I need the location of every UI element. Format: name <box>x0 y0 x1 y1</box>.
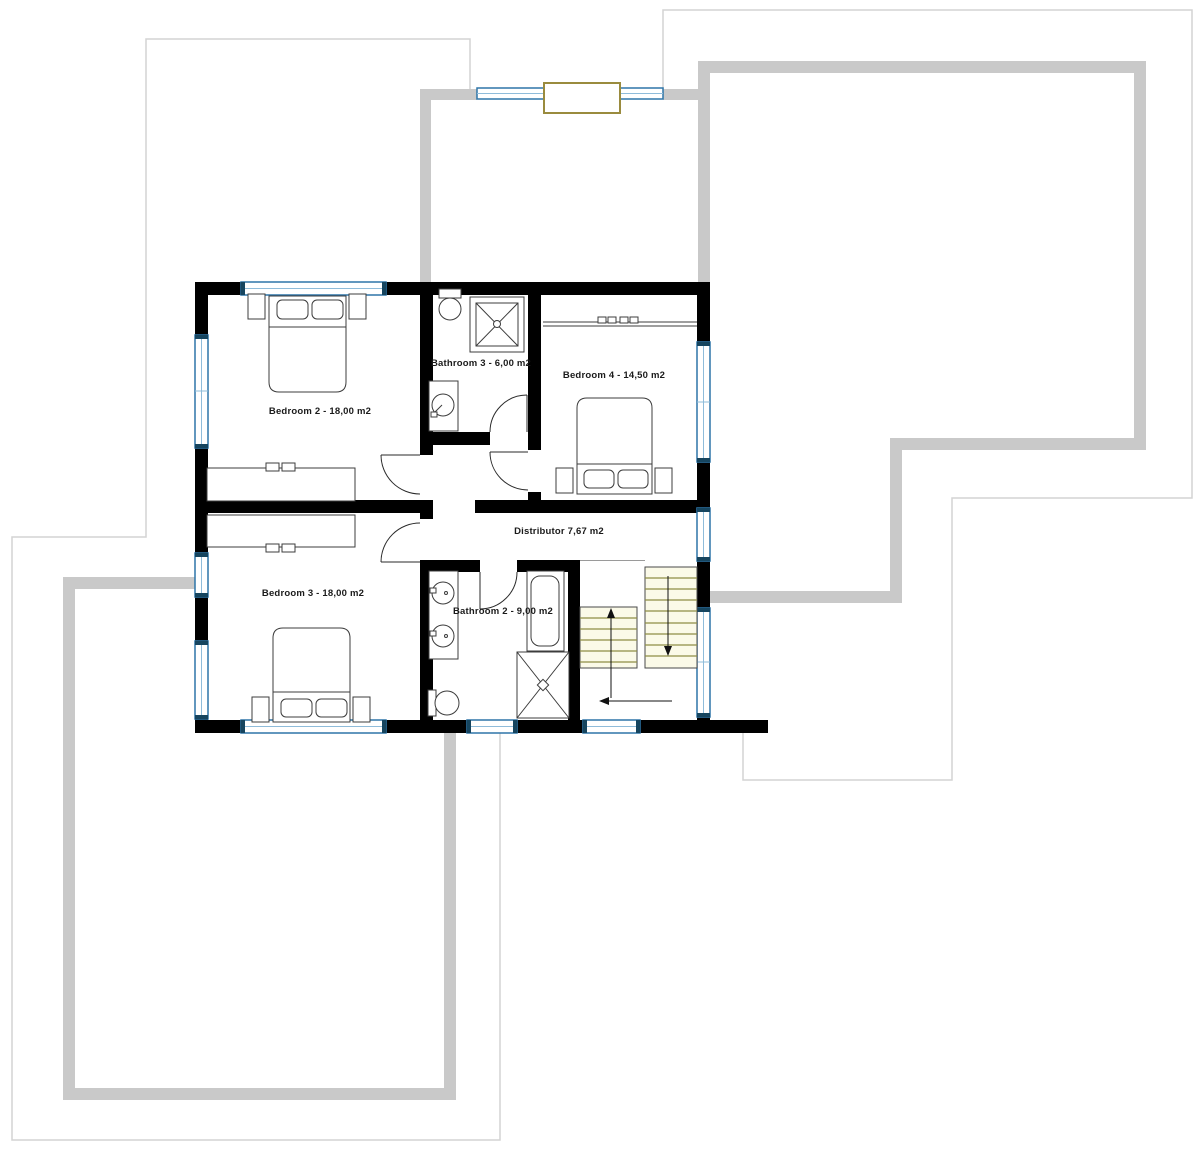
wardrobe-icon <box>207 515 355 552</box>
wardrobe-handle <box>282 463 295 471</box>
floor-plan-canvas: Bedroom 2 - 18,00 m2 Bathroom 3 - 6,00 m… <box>0 0 1200 1150</box>
pillow <box>312 300 343 319</box>
sink-drain <box>445 635 448 638</box>
toilet-icon <box>439 289 461 320</box>
shower-drain <box>494 321 501 328</box>
pillow <box>584 470 614 488</box>
bathroom-2-label: Bathroom 2 - 9,00 m2 <box>453 606 553 617</box>
wardrobe-handle <box>266 463 279 471</box>
bedroom-4-label: Bedroom 4 - 14,50 m2 <box>563 370 665 381</box>
sink-tap-base <box>430 588 436 593</box>
wardrobe-icon <box>207 463 355 501</box>
toilet-tank <box>439 289 461 298</box>
stair-flight-down <box>645 567 697 668</box>
nightstand-icon <box>655 468 672 493</box>
distributor: Distributor 7,67 m2 <box>514 526 604 537</box>
nightstand-icon <box>556 468 573 493</box>
pillow <box>316 699 347 717</box>
pillow <box>618 470 648 488</box>
bathroom-3-label: Bathroom 3 - 6,00 m2 <box>431 358 531 369</box>
nightstand-icon <box>252 697 269 722</box>
pillow <box>281 699 312 717</box>
canvas-background <box>0 0 1200 1150</box>
sink-icon <box>429 381 458 431</box>
closet-handle <box>598 317 606 323</box>
wardrobe-body <box>207 468 355 501</box>
closet-handle <box>620 317 628 323</box>
skylight-box <box>544 83 620 113</box>
nightstand-icon <box>248 294 265 319</box>
wardrobe-body <box>207 515 355 547</box>
nightstand-icon <box>353 697 370 722</box>
shower-icon <box>470 297 524 352</box>
closet-handle <box>608 317 616 323</box>
sink-tap-base <box>431 412 437 417</box>
toilet-bowl <box>439 298 461 320</box>
toilet-icon <box>428 690 459 716</box>
distributor-label: Distributor 7,67 m2 <box>514 526 604 537</box>
bedroom-2-label: Bedroom 2 - 18,00 m2 <box>269 406 371 417</box>
floor-plan-page: Bedroom 2 - 18,00 m2 Bathroom 3 - 6,00 m… <box>0 0 1200 1150</box>
bedroom-3-label: Bedroom 3 - 18,00 m2 <box>262 588 364 599</box>
sink-drain <box>445 592 448 595</box>
closet-handle <box>630 317 638 323</box>
nightstand-icon <box>349 294 366 319</box>
wardrobe-handle <box>266 544 279 552</box>
toilet-bowl <box>435 691 459 715</box>
sink-tap-base <box>430 631 436 636</box>
pillow <box>277 300 308 319</box>
wardrobe-handle <box>282 544 295 552</box>
shower-icon <box>517 652 569 718</box>
